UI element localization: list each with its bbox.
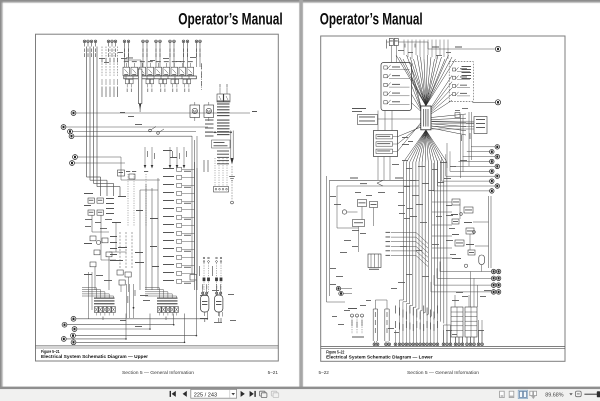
svg-text:Electrical System Schematic Di: Electrical System Schematic Diagram — Lo… [326,355,433,360]
svg-text:5–22: 5–22 [319,370,330,375]
svg-text:Operator’s Manual: Operator’s Manual [178,10,282,28]
svg-text:Section 5 — General Informatio: Section 5 — General Information [122,370,195,375]
svg-text:Electrical System Schematic Di: Electrical System Schematic Diagram — Up… [41,354,148,359]
svg-text:89.68%: 89.68% [545,392,563,398]
svg-text:Section 5 — General Informatio: Section 5 — General Information [407,370,480,375]
svg-text:5–21: 5–21 [268,370,279,375]
svg-text:225 / 243: 225 / 243 [194,392,217,398]
svg-text:Operator’s Manual: Operator’s Manual [320,11,423,29]
